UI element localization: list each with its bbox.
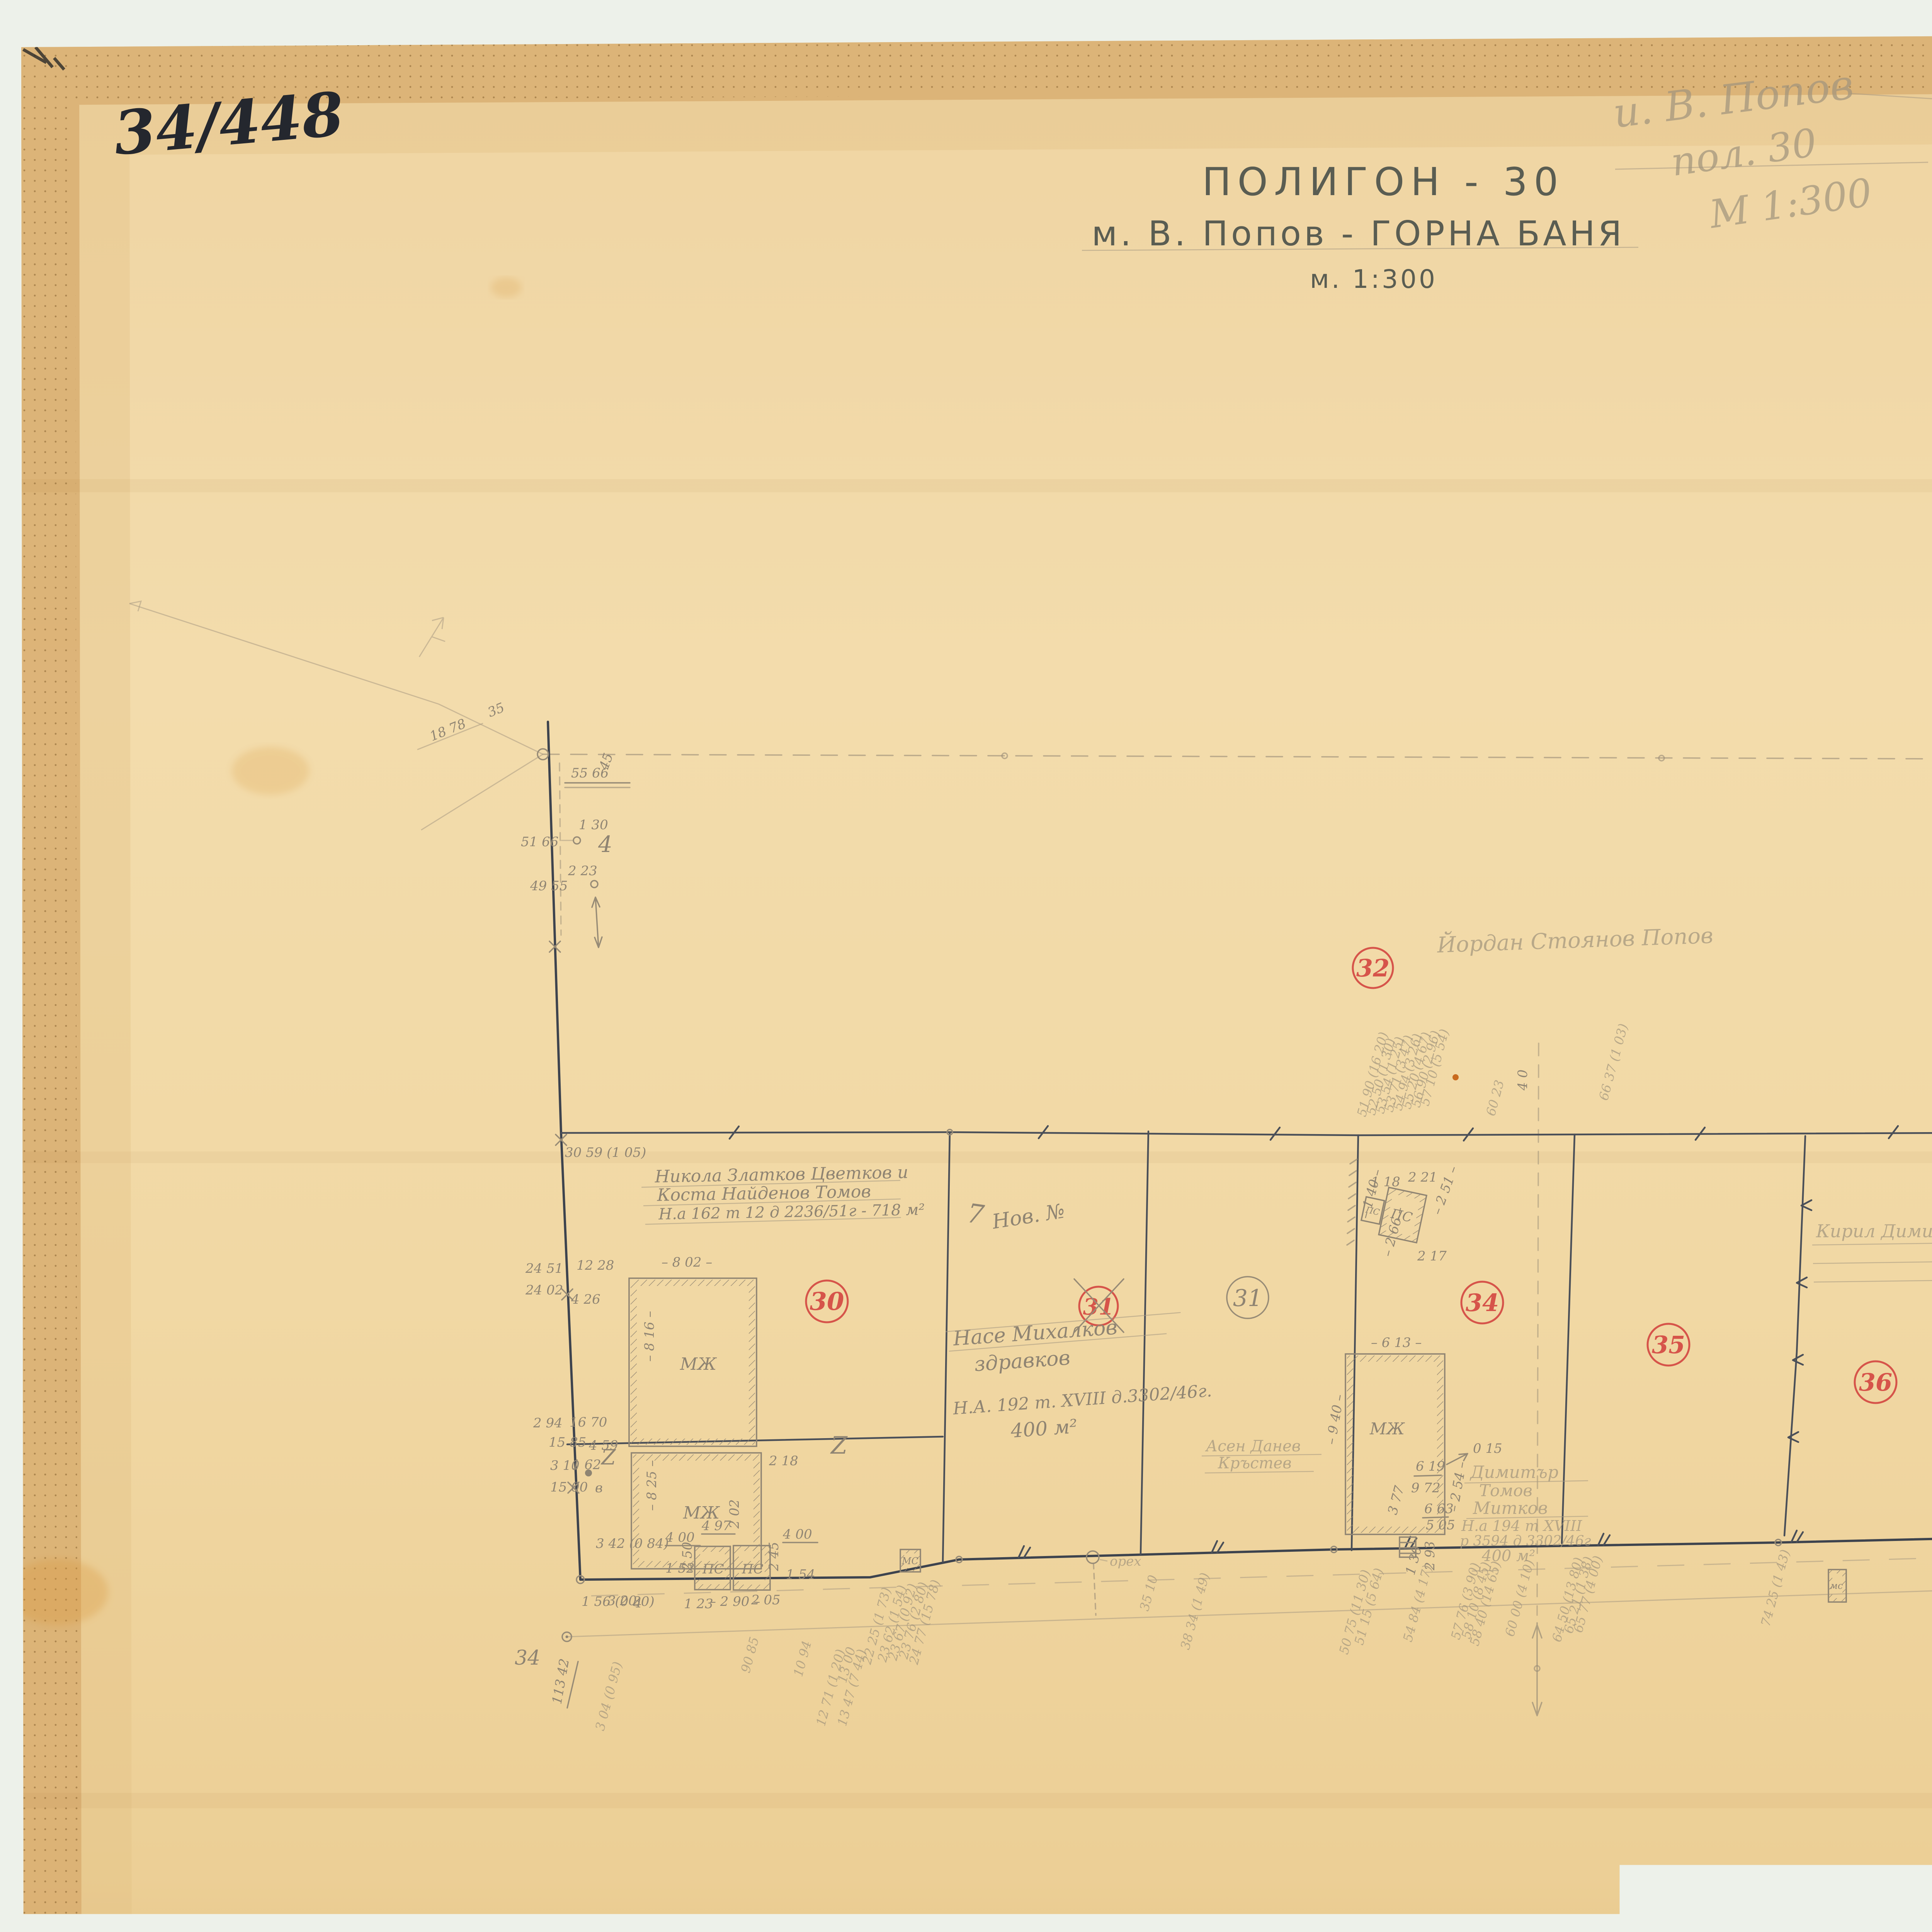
building-label: МС [901,1556,918,1566]
page-subtitle: м. В. Попов - ГОРНА БАНЯ [1092,214,1625,253]
building-label: ПС [702,1561,724,1577]
page-scale: м. 1:300 [1310,264,1437,294]
dimension-label: 1 54 [786,1567,815,1582]
crease-line [21,479,1932,492]
scanned-cadastral-sheet: 34/448 ПОЛИГОН - 30 м. В. Попов - ГОРНА … [0,0,1932,1932]
dimension-label: 15 85 [549,1435,586,1450]
svg-text:Димитър: Димитър [1469,1463,1558,1482]
point4-label: 4 [598,831,612,857]
building-label: ПС [742,1561,764,1577]
dim: 2 23 [568,863,597,879]
dimension-label: 2 94 [533,1415,563,1431]
svg-text:31: 31 [1233,1285,1262,1312]
dimension-label: в [595,1480,603,1496]
building-label: МЖ [1369,1419,1405,1438]
svg-text:30: 30 [810,1287,844,1316]
dimension-label: 4 59 [588,1438,618,1453]
dimension-label: 9 72 [1411,1480,1440,1496]
dimension-label: 2 05 [751,1592,781,1608]
dimension-label: 2 18 [769,1453,798,1469]
crease-line [21,1793,1932,1808]
dimension-label: 24 51 [525,1261,563,1276]
dimension-label: 15 00 [550,1480,588,1495]
svg-text:Кръстев: Кръстев [1218,1454,1292,1472]
dimension-label: – 6 13 – [1371,1335,1422,1350]
dimension-label: – 8 02 – [662,1255,712,1270]
svg-text:35: 35 [1652,1331,1685,1359]
dimension-label: – 8 25 – [644,1460,660,1511]
dimension-label: 1 56 (0 30) [582,1594,655,1609]
svg-text:36: 36 [1859,1368,1892,1396]
dim: 1 30 [579,817,608,833]
bottom-aging [21,1874,1932,1932]
dimension-label: 2 93 [1422,1541,1438,1571]
dimension-label: – 8 16 – [642,1311,657,1362]
dimension-label: 1 23 [684,1596,713,1612]
dimension-label: 24 02 [525,1282,563,1298]
dimension-label: 2 02 [727,1499,742,1529]
dim: 4 0 [1515,1070,1531,1091]
svg-text:Н.а 194 т XVIII: Н.а 194 т XVIII [1461,1517,1582,1534]
crease-line [21,1151,1932,1163]
dimension-label: 0 15 [1473,1441,1502,1456]
dimension-label: 4 26 [571,1292,600,1307]
dimension-label: 16 70 [570,1415,607,1430]
point-dot [585,1469,592,1476]
dimension-label: 2 21 [1408,1170,1437,1185]
svg-text:Коста Найденов Томов: Коста Найденов Томов [656,1182,871,1205]
dimension-label: 2 17 [1417,1248,1447,1264]
svg-text:Асен Данев: Асен Данев [1205,1437,1301,1455]
svg-text:Митков: Митков [1473,1498,1548,1518]
svg-text:р 3594 д 3302/46г: р 3594 д 3302/46г [1460,1533,1591,1549]
page-title: ПОЛИГОН - 30 [1202,159,1565,204]
parcel-number-30: 30 [806,1281,848,1322]
svg-text:Кирил Димитров: Кирил Димитров [1816,1221,1932,1242]
parcel-number-32: 32 [1353,948,1393,988]
dim: 49 55 [530,878,568,894]
point34-label: 34 [515,1646,540,1670]
svg-text:32: 32 [1356,954,1389,982]
tree-label: орех [1110,1554,1141,1569]
dimension-label: 6 19 [1416,1459,1445,1474]
stain [491,277,522,298]
stain [8,1559,108,1625]
dimension-label: 3 42 (0 84) [596,1536,669,1551]
building-label: мс [1830,1580,1843,1591]
svg-text:Томов: Томов [1479,1481,1532,1500]
dimension-label: 5 05 [1426,1517,1455,1533]
building-ms-upper: МС [900,1549,920,1572]
plan-canvas: 34/448 ПОЛИГОН - 30 м. В. Попов - ГОРНА … [0,0,1932,1932]
paper-sheet [8,31,1932,1932]
svg-text:400 м²: 400 м² [1010,1415,1078,1442]
dimension-label: 1 52 [665,1561,695,1576]
paper-body [21,31,1932,1932]
dimension-label: 2 45 [766,1542,782,1571]
dim: 51 66 [521,834,558,850]
stain [232,747,309,795]
dimension-label: 4 00 [782,1527,812,1542]
building-label: МЖ [680,1354,717,1374]
dimension-label: 30 59 (1 05) [565,1145,646,1160]
gate-symbol-z: Z [830,1431,848,1459]
dimension-label: 12 28 [577,1258,614,1273]
svg-text:34: 34 [1466,1289,1499,1317]
ink-speck [1452,1074,1459,1080]
